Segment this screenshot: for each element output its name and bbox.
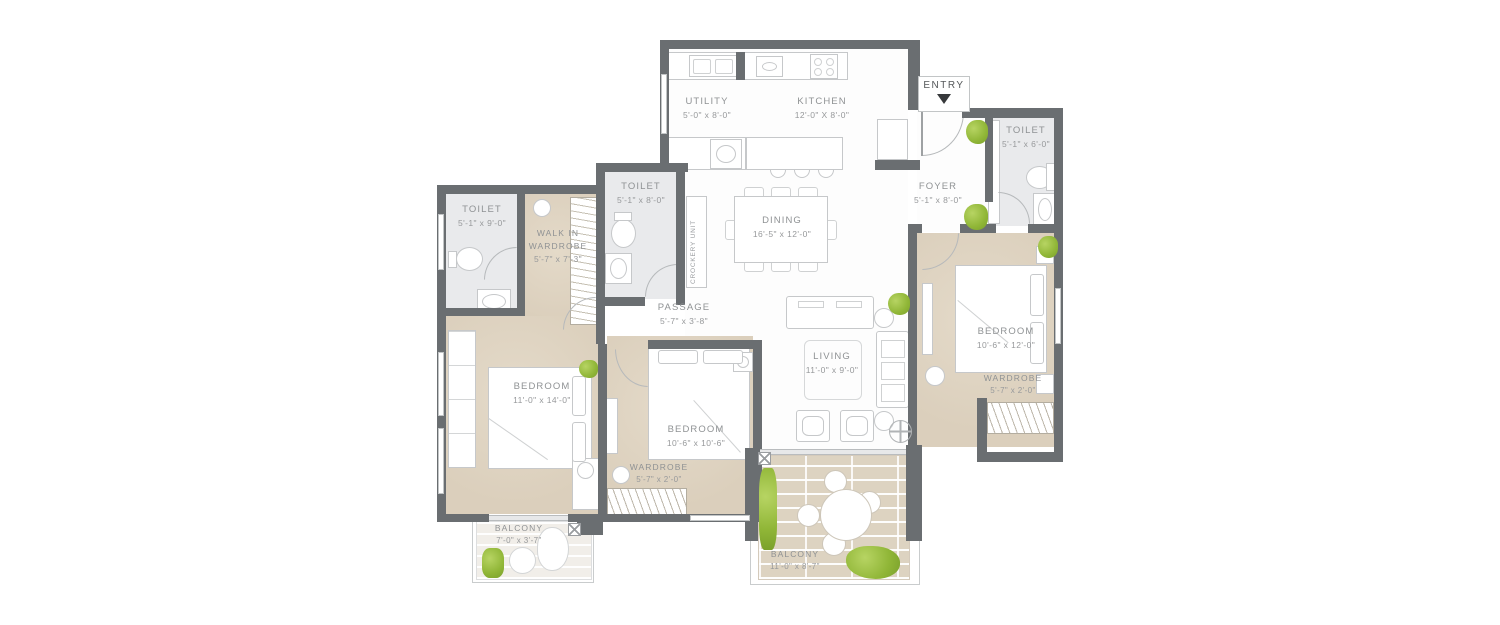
room-name: DINING [762, 215, 802, 226]
balcony-table [509, 547, 536, 574]
window [661, 74, 667, 134]
wall [977, 398, 987, 460]
room-label-living: LIVING 11'-0" x 9'-0" [806, 351, 858, 375]
room-label-kitchen: KITCHEN 12'-0" X 8'-0" [780, 96, 864, 120]
plant-icon [1038, 236, 1058, 258]
wc-tank [448, 251, 457, 268]
room-label-balcony-left: BALCONY 7'-0" x 3'-7" [484, 523, 554, 545]
room-dim: 11'-0" x 14'-0" [513, 395, 571, 405]
room-label-walkin-wardrobe: WALK IN WARDROBE 5'-7" x 7'-3" [518, 228, 598, 264]
room-label-toilet-right: TOILET 5'-1" x 6'-0" [994, 125, 1058, 149]
room-dim: 5'-7" x 3'-8" [660, 316, 708, 326]
room-name: BALCONY [495, 523, 543, 533]
room-name: PASSAGE [658, 302, 710, 313]
sofa [786, 296, 874, 329]
room-name: KITCHEN [797, 96, 846, 107]
fridge [877, 119, 908, 160]
room-name: TOILET [462, 204, 502, 215]
plant-icon [579, 360, 598, 378]
window [438, 352, 444, 416]
room-label-passage: PASSAGE 5'-7" x 3'-8" [642, 302, 726, 326]
room-name: UTILITY [685, 96, 728, 107]
pouf [925, 366, 945, 386]
ac-symbol-icon [889, 420, 912, 443]
balcony-table [820, 489, 872, 541]
room-name: LIVING [813, 351, 851, 362]
room-label-wardrobe-mid: WARDROBE 5'-7" x 2'-0" [624, 462, 694, 484]
room-label-toilet-left: TOILET 5'-1" x 9'-0" [450, 204, 514, 228]
entry-arrow-icon [937, 94, 951, 104]
console-table [922, 283, 933, 355]
plant-icon [888, 293, 910, 315]
wall [906, 445, 922, 541]
wall [676, 172, 685, 305]
room-name: BEDROOM [668, 424, 725, 435]
bedside-table [606, 398, 618, 454]
pillow [658, 350, 698, 364]
wall [1054, 398, 1063, 460]
wall [745, 448, 758, 541]
entry-label: ENTRY [918, 76, 970, 112]
window [690, 515, 750, 521]
window [438, 214, 444, 270]
door-leaf [921, 112, 923, 156]
room-name: BEDROOM [514, 381, 571, 392]
wall [648, 340, 762, 349]
entry-text: ENTRY [923, 80, 964, 91]
room-dim: 7'-0" x 3'-7" [496, 536, 542, 545]
shaft-x-icon [758, 452, 771, 465]
room-name: TOILET [1006, 125, 1046, 136]
sliding-door [760, 449, 906, 455]
wall [598, 297, 645, 306]
armchair [840, 410, 874, 442]
balcony-chair [797, 504, 820, 527]
wardrobe-shelf [607, 488, 687, 516]
plant-icon [966, 120, 988, 144]
wall [1054, 108, 1063, 408]
stool [533, 199, 551, 217]
room-dim: 10'-6" x 12'-0" [977, 340, 1035, 350]
wc-icon [456, 247, 483, 271]
sink-icon [756, 56, 783, 77]
room-name: WARDROBE [984, 373, 1043, 383]
room-label-foyer: FOYER 5'-1" x 8'-0" [896, 181, 980, 205]
room-label-balcony-main: BALCONY 11'-0" x 8'-7" [758, 549, 832, 571]
window [1055, 288, 1061, 344]
basin-icon [577, 462, 594, 479]
wall [875, 160, 920, 170]
room-dim: 11'-0" x 8'-7" [770, 562, 820, 571]
shaft-x-icon [568, 523, 581, 536]
room-dim: 5'-1" x 6'-0" [1002, 139, 1050, 149]
chaise [876, 331, 909, 408]
pillow [1030, 274, 1044, 316]
room-dim: 5'-0" x 8'-0" [683, 110, 731, 120]
room-dim: 5'-1" x 8'-0" [617, 195, 665, 205]
wall [598, 344, 607, 522]
washing-machine-icon [710, 139, 742, 169]
armchair [796, 410, 830, 442]
plant-icon [759, 468, 777, 550]
pillow [572, 422, 586, 462]
wall [908, 233, 917, 447]
room-dim: 16'-5" x 12'-0" [753, 229, 811, 239]
room-label-dining: DINING 16'-5" x 12'-0" [742, 215, 822, 239]
wall [437, 185, 604, 194]
room-dim: 5'-1" x 9'-0" [458, 218, 506, 228]
hob-icon [810, 54, 838, 79]
room-label-bedroom-mid: BEDROOM 10'-6" x 10'-6" [656, 424, 736, 448]
sliding-door [489, 515, 568, 521]
wall [598, 163, 688, 172]
wall [736, 52, 745, 80]
room-dim: 10'-6" x 10'-6" [667, 438, 725, 448]
room-label-toilet-mid: TOILET 5'-1" x 8'-0" [609, 181, 673, 205]
room-name: FOYER [919, 181, 957, 192]
wall [908, 224, 922, 233]
floor-plan: ENTRY UTILITY 5'-0" x 8'-0" KITCHEN 12'-… [0, 0, 1500, 625]
room-label-bedroom-right: BEDROOM 10'-6" x 12'-0" [966, 326, 1046, 350]
wc-icon [611, 219, 636, 248]
wall [977, 452, 1063, 462]
room-dim: 5'-7" x 2'-0" [636, 475, 682, 484]
room-name: WARDROBE [529, 241, 588, 251]
room-name: BALCONY [771, 549, 819, 559]
room-name: BEDROOM [978, 326, 1035, 337]
wc-tank [614, 212, 632, 221]
wall [985, 108, 1063, 118]
wall [437, 514, 489, 522]
window [438, 428, 444, 494]
crockery-unit-label: CROCKERY UNIT [690, 204, 697, 284]
wall [437, 308, 521, 316]
room-name: WALK IN [537, 228, 579, 238]
washbasin-icon [605, 253, 632, 284]
wardrobe-shelf [987, 402, 1054, 434]
room-label-bedroom-left: BEDROOM 11'-0" x 14'-0" [502, 381, 582, 405]
double-sink-icon [689, 55, 738, 77]
plant-icon [964, 204, 988, 230]
room-name: TOILET [621, 181, 661, 192]
room-dim: 12'-0" X 8'-0" [795, 110, 850, 120]
room-name: WARDROBE [630, 462, 689, 472]
island-counter [746, 137, 843, 170]
room-dim: 11'-0" x 9'-0" [806, 365, 859, 375]
room-label-wardrobe-right: WARDROBE 5'-7" x 2'-0" [978, 373, 1048, 395]
room-label-utility: UTILITY 5'-0" x 8'-0" [668, 96, 746, 120]
room-dim: 5'-1" x 8'-0" [914, 195, 962, 205]
room-dim: 5'-7" x 7'-3" [534, 254, 582, 264]
room-dim: 5'-7" x 2'-0" [990, 386, 1036, 395]
plant-icon [482, 548, 504, 578]
wardrobe-unit [448, 330, 476, 468]
pillow [703, 350, 743, 364]
wall [1028, 224, 1063, 233]
wall [663, 40, 920, 49]
